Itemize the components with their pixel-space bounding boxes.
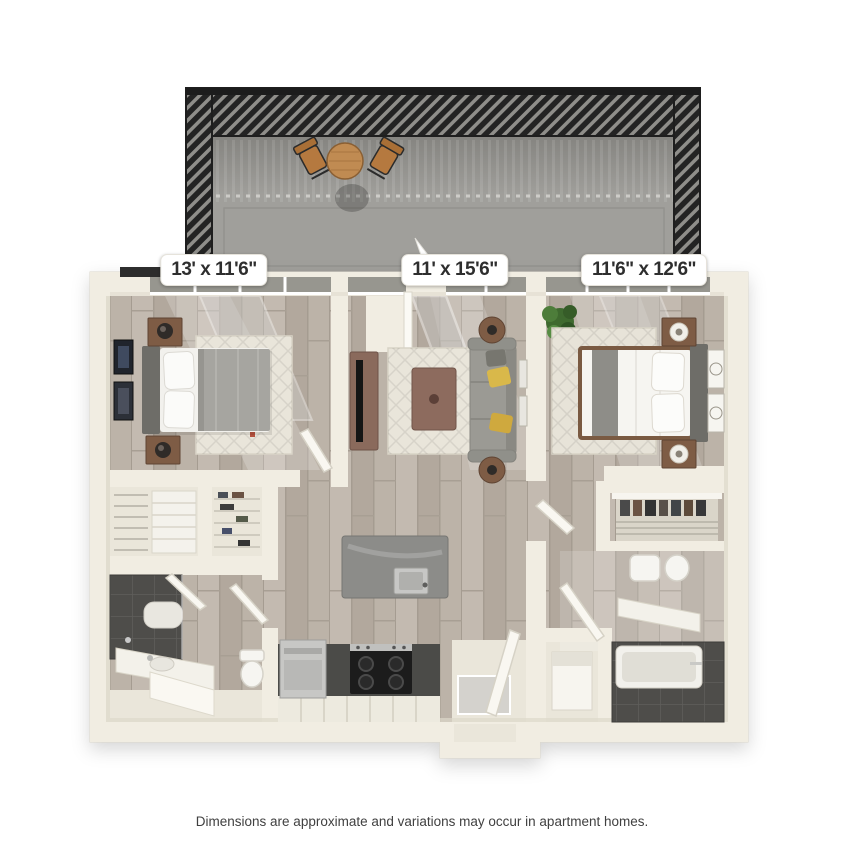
faucet (690, 662, 702, 665)
tv (356, 360, 363, 442)
entry-threshold (454, 724, 516, 742)
kitchen-island (342, 536, 448, 598)
faucet (423, 583, 428, 588)
throw-blanket (592, 350, 618, 436)
coffee-table (412, 368, 456, 430)
dresser (152, 491, 196, 553)
kitchen-appliance (280, 640, 326, 698)
throw-pillow (485, 349, 507, 367)
headboard (690, 344, 708, 442)
toilet-right (630, 555, 689, 581)
sofa (468, 338, 516, 462)
dimension-label-bedroom-right: 11'6" x 12'6" (581, 254, 707, 286)
dimension-label-bedroom-left: 13' x 11'6" (160, 254, 267, 286)
side-table (479, 457, 505, 483)
disclaimer-text: Dimensions are approximate and variation… (196, 814, 648, 829)
nightstand (148, 318, 182, 346)
bathtub-right (612, 642, 724, 722)
pillow (163, 351, 195, 390)
pillow (651, 352, 684, 391)
pillow (163, 390, 194, 428)
window-living-left (348, 277, 406, 295)
nightstand (662, 318, 696, 346)
pillow (651, 393, 684, 432)
bed-left (142, 346, 272, 435)
balcony-door (404, 292, 412, 350)
headboard (142, 346, 160, 434)
table-shadow (335, 184, 369, 212)
nightstand (146, 436, 180, 464)
side-table (479, 317, 505, 343)
wall-stub (366, 296, 408, 352)
floor-plan-page: 13' x 11'6" 11' x 15'6" 11'6" x 12'6" Di… (0, 0, 844, 844)
faucet (125, 637, 131, 643)
bathtub-left (110, 575, 182, 659)
dimension-label-living-room: 11' x 15'6" (401, 254, 508, 286)
sink-basin (150, 657, 174, 671)
kitchen-sink (394, 568, 428, 594)
nightstand (662, 440, 696, 468)
toilet-left (240, 650, 264, 687)
faucet (147, 655, 153, 661)
bistro-table (327, 143, 363, 179)
range-cooktop (350, 644, 412, 694)
bed-right (580, 344, 708, 442)
utility-closet (552, 652, 592, 710)
balcony (186, 88, 700, 272)
throw-pillow (489, 412, 514, 434)
walk-in-closet (612, 493, 722, 541)
tv-console (350, 352, 378, 450)
floor-plan-svg (0, 0, 844, 844)
